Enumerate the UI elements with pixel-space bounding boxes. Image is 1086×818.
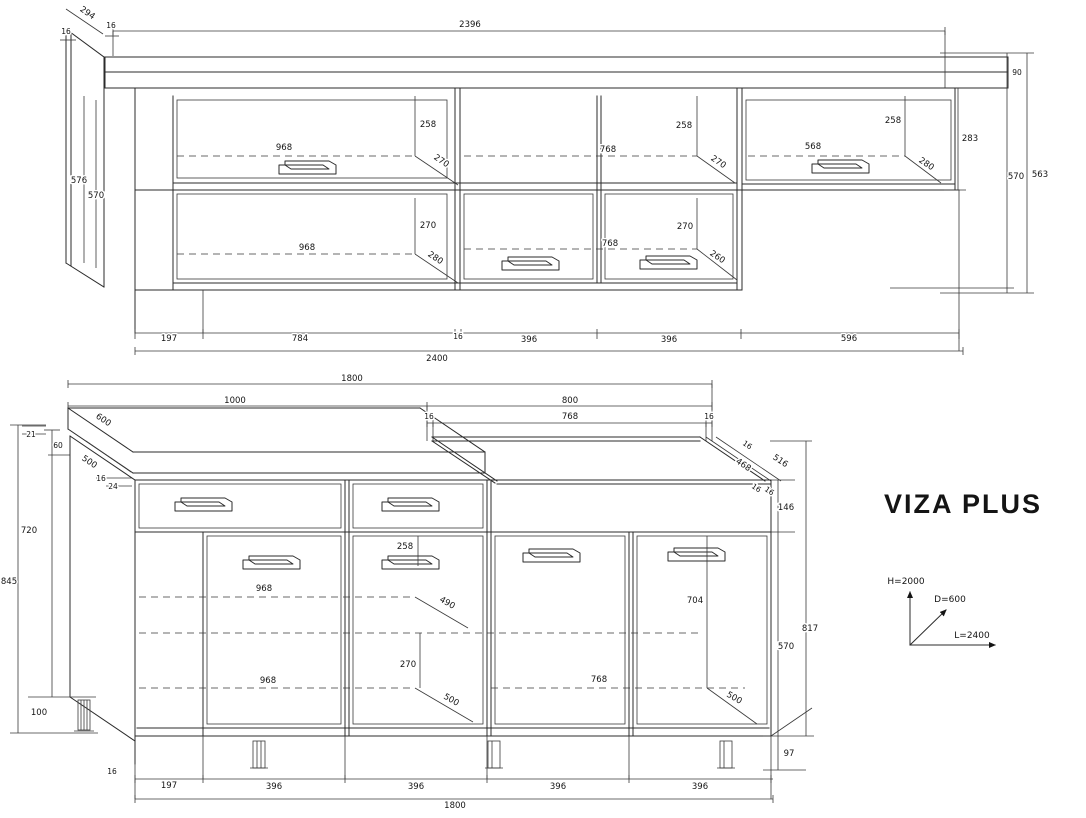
dim-label: 396 — [550, 782, 566, 792]
dim-label: 16 — [704, 412, 714, 421]
dim-label: 396 — [266, 782, 282, 792]
dim-label: 16 — [763, 485, 776, 498]
axis-height-label: H=2000 — [887, 577, 924, 587]
dim-label: 16 — [61, 27, 71, 36]
dim-label: 720 — [21, 526, 37, 536]
handle-icon — [668, 548, 725, 561]
dim-label: 784 — [292, 334, 308, 344]
dim-label: 396 — [521, 335, 537, 345]
dim-label: 197 — [161, 334, 177, 344]
dim-label: 1800 — [444, 801, 466, 811]
dim-label: 1800 — [341, 374, 363, 384]
dim-label: 968 — [260, 676, 276, 686]
dim-label: 146 — [778, 503, 794, 513]
dim-label: 258 — [420, 120, 436, 130]
dim-label: 197 — [161, 781, 177, 791]
product-title: VIZA PLUS — [884, 489, 1042, 519]
handle-icon — [640, 256, 697, 269]
dim-label: 270 — [432, 153, 451, 170]
dim-label: 817 — [802, 624, 818, 634]
dim-label: 294 — [78, 5, 97, 23]
dim-label: 396 — [692, 782, 708, 792]
handle-icon — [279, 161, 336, 174]
dim-label: 968 — [299, 243, 315, 253]
worktop-slab — [22, 408, 485, 486]
dim-label: 1000 — [224, 396, 246, 406]
handle-icon — [382, 556, 439, 569]
dim-label: 468 — [734, 457, 753, 474]
dim-label: 21 — [26, 430, 36, 439]
top-view-bottom-dimensions — [135, 190, 963, 355]
drawing-canvas: 294 16 16 2396 90 576 570 258 968 270 27… — [0, 0, 1086, 818]
dim-label: 270 — [677, 222, 693, 232]
dim-label: 16 — [106, 21, 116, 30]
dim-label: 576 — [71, 176, 87, 186]
dim-label: 563 — [1032, 170, 1048, 180]
handle-icon — [812, 160, 869, 173]
dim-label: 768 — [591, 675, 607, 685]
depth-axis-arrow-icon — [910, 610, 946, 645]
dim-label: 768 — [562, 412, 578, 422]
wall-cabinet-3 — [746, 88, 966, 190]
handle-icon — [382, 498, 439, 511]
left-side-panel — [66, 29, 104, 287]
dim-label: 270 — [709, 154, 728, 171]
dim-label: 2396 — [459, 20, 481, 30]
dim-label: 570 — [1008, 172, 1024, 182]
top-dimensions — [60, 9, 945, 88]
bottom-view-bottom-dimensions — [135, 736, 773, 803]
dim-label: 968 — [276, 143, 292, 153]
dim-label: 258 — [676, 121, 692, 131]
dim-label: 704 — [687, 596, 703, 606]
dim-label: 516 — [771, 453, 790, 470]
dim-label: 260 — [708, 249, 727, 266]
dim-label: 968 — [256, 584, 272, 594]
right-cabinet-top — [432, 437, 781, 484]
axis-depth-label: D=600 — [934, 595, 966, 605]
dim-label: 570 — [778, 642, 794, 652]
dim-label: 568 — [805, 142, 821, 152]
dim-label: 16 — [453, 332, 463, 341]
base-cabinet-front — [135, 480, 771, 764]
bottom-view-top-dimensions — [68, 380, 712, 441]
dim-label: 845 — [1, 577, 17, 587]
dim-label: 16 — [741, 439, 754, 452]
bottom-view-base-cabinets: 1800 1000 800 16 768 16 600 21 60 500 16… — [1, 374, 818, 811]
dim-label: 500 — [80, 454, 99, 471]
axis-length-label: L=2400 — [954, 631, 990, 641]
dim-label: 283 — [962, 134, 978, 144]
dim-label: 500 — [724, 690, 743, 707]
dim-label: 16 — [107, 767, 117, 776]
dim-label: 258 — [885, 116, 901, 126]
dim-label: 16 — [96, 474, 106, 483]
dim-label: 800 — [562, 396, 578, 406]
dim-label: 570 — [88, 191, 104, 201]
bottom-view-labels: 1800 1000 800 16 768 16 600 21 60 500 16… — [1, 374, 818, 811]
dim-label: 2400 — [426, 354, 448, 364]
dim-label: 100 — [31, 708, 47, 718]
dim-label: 60 — [53, 441, 63, 450]
dim-label: 600 — [94, 412, 113, 429]
dim-label: 280 — [426, 250, 445, 267]
axis-legend: H=2000 D=600 L=2400 — [887, 577, 995, 645]
dim-label: 258 — [397, 542, 413, 552]
front-legs — [250, 741, 735, 768]
dim-label: 280 — [917, 156, 936, 173]
dim-label: 90 — [1012, 68, 1022, 77]
handle-icon — [175, 498, 232, 511]
dim-label: 396 — [408, 782, 424, 792]
dim-label: 490 — [437, 595, 456, 612]
dim-label: 270 — [420, 221, 436, 231]
top-view-wall-cabinets: 294 16 16 2396 90 576 570 258 968 270 27… — [60, 5, 1048, 364]
dim-label: 596 — [841, 334, 857, 344]
dim-label: 396 — [661, 335, 677, 345]
dim-label: 97 — [784, 749, 795, 759]
left-dimension-rails — [10, 425, 98, 733]
handle-icon — [523, 549, 580, 562]
handle-icon — [243, 556, 300, 569]
dim-label: 16 — [750, 482, 763, 495]
wall-cabinet-carcass — [135, 88, 959, 333]
dim-label: 500 — [441, 692, 460, 709]
dim-label: 768 — [602, 239, 618, 249]
handle-icon — [502, 257, 559, 270]
technical-drawing-page: 294 16 16 2396 90 576 570 258 968 270 27… — [0, 0, 1086, 818]
dim-label: 16 — [424, 412, 434, 421]
cornice-band — [105, 57, 1008, 88]
dim-label: 270 — [400, 660, 416, 670]
dim-label: 768 — [600, 145, 616, 155]
dim-label: 24 — [108, 482, 118, 491]
